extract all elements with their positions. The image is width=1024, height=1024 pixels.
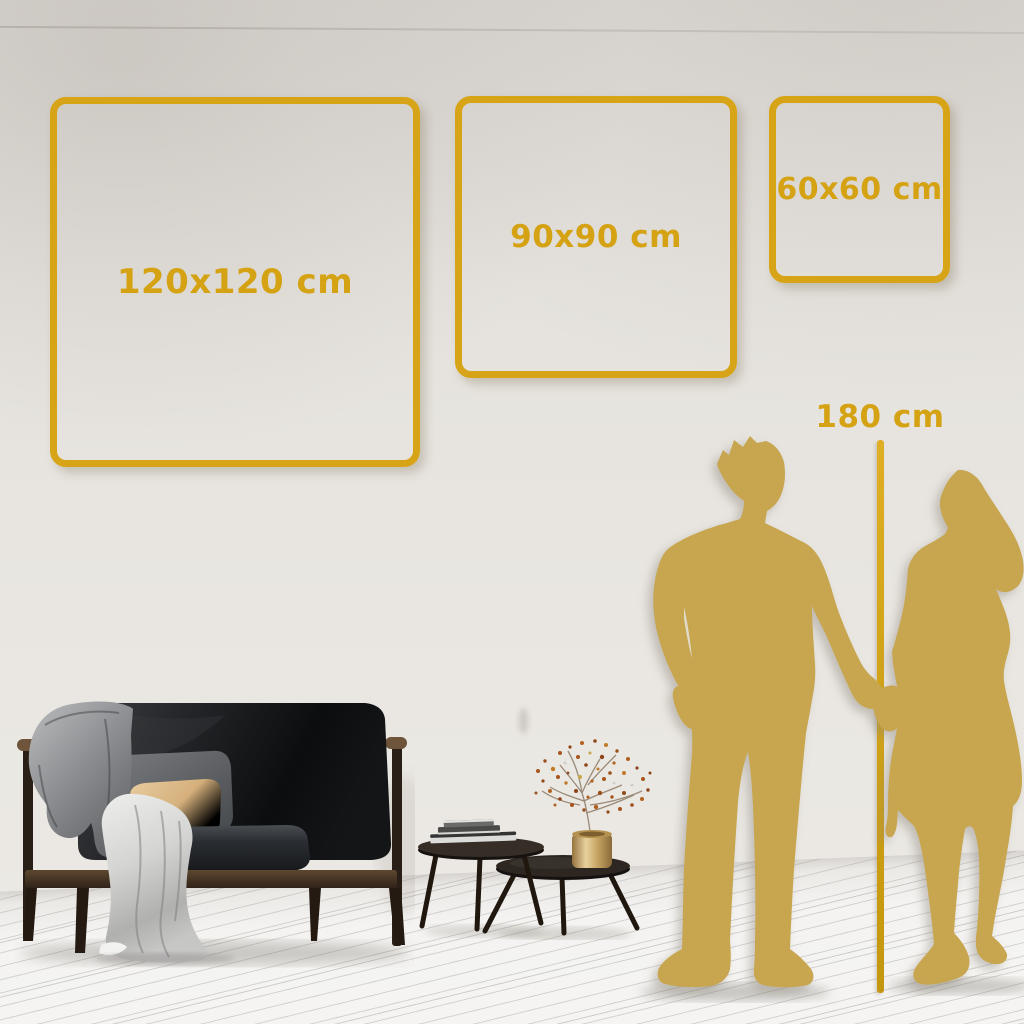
size-frame-90-label: 90x90 cm [510, 219, 682, 255]
sofa-right-armrest-peg [385, 737, 407, 749]
size-frame-60-label: 60x60 cm [776, 172, 942, 207]
sofa-leg [309, 888, 321, 941]
size-frame-120-label: 120x120 cm [117, 262, 353, 302]
wall-smudge [519, 708, 528, 734]
height-reference-label: 180 cm [805, 399, 955, 435]
sofa-leg [75, 888, 89, 953]
book-stack [430, 818, 517, 843]
sofa-wood-rail [25, 870, 397, 888]
size-frame-90: 90x90 cm [455, 96, 737, 378]
sofa-photo [15, 695, 415, 970]
size-frame-120: 120x120 cm [50, 97, 420, 467]
couple-silhouette [600, 400, 1024, 1024]
woman-silhouette [885, 470, 1023, 985]
ceiling-wall-junction [0, 26, 1024, 34]
woman-floor-shadow [888, 978, 1024, 994]
size-guide-scene: 120x120 cm 90x90 cm 60x60 cm [0, 0, 1024, 1024]
drape-shadow [95, 953, 235, 965]
size-frame-60: 60x60 cm [769, 96, 950, 283]
